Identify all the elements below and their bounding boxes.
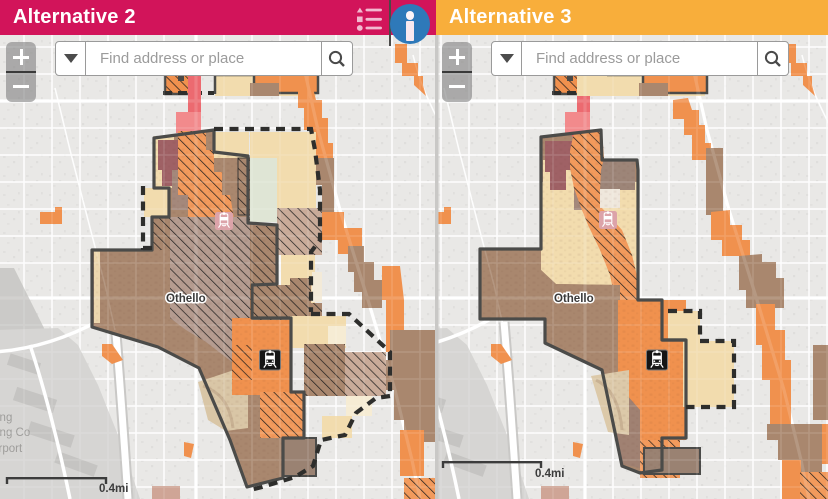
svg-text:0.4mi: 0.4mi [99, 483, 128, 495]
svg-text:Othello: Othello [166, 293, 206, 305]
svg-text:0.4mi: 0.4mi [535, 468, 564, 480]
svg-text:Othello: Othello [554, 293, 594, 305]
